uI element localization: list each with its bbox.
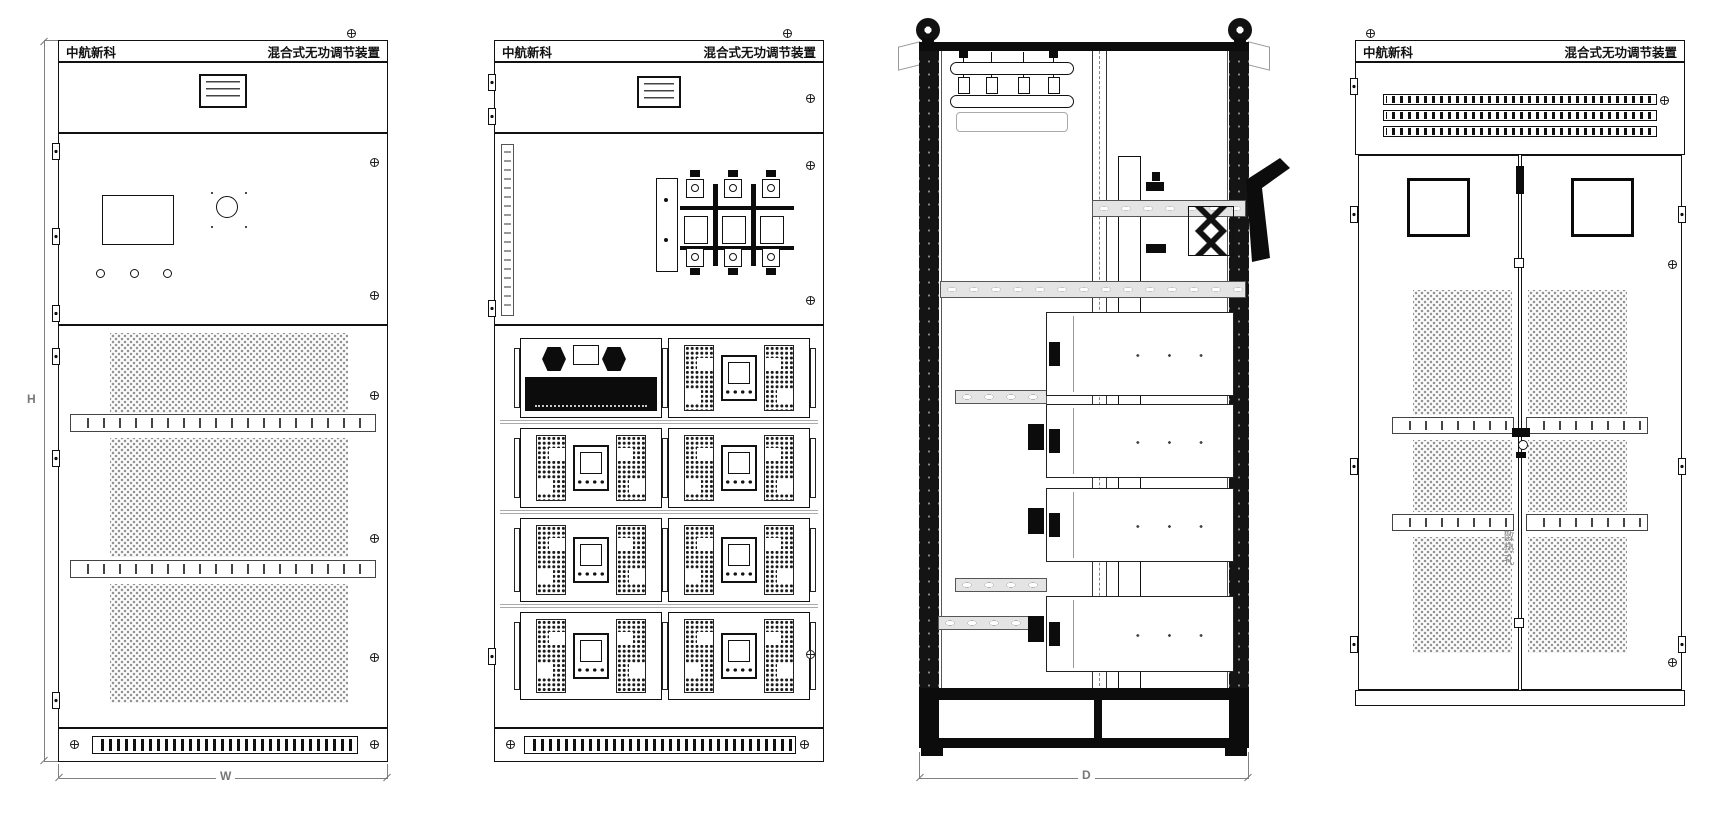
- power-module: [520, 518, 662, 602]
- screw-fastener: [70, 740, 79, 749]
- brand-label: 中航新科: [66, 42, 116, 61]
- door-lock-knob: [216, 196, 238, 218]
- ventilation-mesh: [1413, 290, 1512, 415]
- module-connector: [1049, 429, 1060, 453]
- breaker-terminal-cap: [728, 268, 738, 275]
- busbar-clamp: [1048, 77, 1060, 94]
- module-display-screen: [580, 544, 602, 566]
- door-hinge: [1678, 458, 1686, 475]
- door-hinge: [1678, 636, 1686, 653]
- dimension-label-depth: D: [1078, 768, 1095, 782]
- module-vent-strip: [684, 345, 714, 411]
- breaker-terminal-bolt: [767, 184, 775, 192]
- dimension-label-height: H: [27, 392, 36, 406]
- mounting-ear: [514, 348, 520, 408]
- dimension-extension: [44, 761, 58, 762]
- module-display-screen: [728, 452, 750, 474]
- cabinet4-header: 中航新科 混合式无功调节装置: [1355, 40, 1685, 62]
- product-title: 混合式无功调节装置: [267, 42, 380, 61]
- dimension-label-width: W: [216, 769, 235, 783]
- switch-bolt: [1146, 244, 1166, 253]
- screw-fastener: [1660, 96, 1669, 105]
- cad-drawing-canvas: 中航新科 混合式无功调节装置 H W 中航新科 混合式无: [0, 0, 1712, 813]
- module-vent-strip: [684, 619, 714, 693]
- door-hinge: [52, 450, 60, 467]
- busbar: [950, 95, 1074, 108]
- module-fastener-dots: [1122, 354, 1217, 357]
- base-center-support: [1094, 700, 1102, 738]
- terminal-block: [1028, 616, 1044, 642]
- module-vent-strip: [616, 619, 646, 693]
- door-hinge: [52, 305, 60, 322]
- module-display-leds: [576, 572, 606, 576]
- module-panel-line: [1073, 492, 1074, 558]
- top-vent-slats: [1383, 126, 1657, 137]
- breaker-terminal-bolt: [729, 253, 737, 261]
- door-latch: [1514, 258, 1524, 268]
- slotted-mounting-rail: [938, 616, 1040, 630]
- power-module: [668, 612, 810, 700]
- cabinet3-top-rail: [919, 42, 1249, 51]
- mounting-ear: [514, 622, 520, 690]
- terminal-block: [1028, 424, 1044, 450]
- breaker-terminal-bolt: [767, 253, 775, 261]
- mounting-ear: [662, 622, 668, 690]
- power-module: [668, 338, 810, 418]
- indicator-light: [96, 269, 105, 278]
- busbar-clamp: [958, 77, 970, 94]
- breaker-terminal-cap: [690, 268, 700, 275]
- cabinet2-nameplate: [637, 76, 681, 108]
- dimension-line-height: [44, 40, 45, 762]
- module-panel-line: [1073, 408, 1074, 474]
- cabinet4-top-panel: [1355, 62, 1685, 155]
- busbar-bolt-head: [959, 51, 968, 58]
- rectifier-module: [520, 338, 662, 418]
- switch-bolt: [1146, 182, 1164, 191]
- ventilation-mesh: [110, 438, 348, 557]
- louver-strip: [1526, 514, 1648, 531]
- mounting-rail-vertical: [501, 144, 514, 316]
- cabinet1-nameplate: [199, 74, 247, 108]
- module-display-leds: [724, 390, 754, 394]
- module-connector: [1049, 622, 1060, 646]
- door-hinge: [488, 74, 496, 91]
- mounting-ear: [662, 528, 668, 592]
- observation-window: [1571, 178, 1634, 237]
- door-hinge: [1350, 206, 1358, 223]
- module-vent-strip: [764, 525, 794, 595]
- base-vent-slats: [92, 736, 358, 754]
- cooling-fan-icon: [601, 346, 627, 372]
- screw-fastener: [506, 740, 515, 749]
- door-hinge: [488, 648, 496, 665]
- louver-strip: [1526, 417, 1648, 434]
- switch-linkage-brace: [1188, 206, 1234, 256]
- power-module: [520, 428, 662, 508]
- cooling-fan-icon: [541, 346, 567, 372]
- screw-fastener: [806, 296, 815, 305]
- dimension-extension: [919, 752, 920, 778]
- module-fastener-dots: [1122, 525, 1217, 528]
- screw-fastener: [370, 740, 379, 749]
- module-side-view: [1046, 404, 1234, 478]
- door-hinge: [1350, 636, 1358, 653]
- screw-fastener: [1668, 260, 1677, 269]
- breaker-terminal-cap: [690, 170, 700, 177]
- brand-label: 中航新科: [502, 42, 552, 61]
- screw-fastener: [1366, 29, 1375, 38]
- module-display-leds: [576, 668, 606, 672]
- screw-fastener: [370, 653, 379, 662]
- ventilation-mesh: [1528, 440, 1627, 512]
- product-title: 混合式无功调节装置: [703, 42, 816, 61]
- power-module: [520, 612, 662, 700]
- ventilation-mesh: [110, 584, 348, 703]
- rack-shelf: [500, 420, 818, 424]
- module-vent-strip: [764, 345, 794, 411]
- module-display: [721, 537, 757, 583]
- door-hinge: [1350, 78, 1358, 95]
- door-hinge: [488, 108, 496, 125]
- product-title: 混合式无功调节装置: [1564, 42, 1677, 61]
- louver-strip: [1392, 417, 1514, 434]
- breaker-terminal-bolt: [691, 253, 699, 261]
- module-vent-strip: [536, 435, 566, 501]
- module-display-screen: [580, 640, 602, 662]
- top-vent-slats: [1383, 110, 1657, 121]
- screw-fastener: [370, 158, 379, 167]
- knob-corner-dot: [211, 226, 213, 228]
- busbar-clamp: [986, 77, 998, 94]
- base-bottom-rail: [919, 738, 1249, 748]
- rack-shelf: [500, 604, 818, 608]
- terminal-block: [1028, 508, 1044, 534]
- module-display-screen: [728, 362, 750, 384]
- module-display-screen: [728, 544, 750, 566]
- slotted-mounting-rail: [940, 281, 1246, 298]
- cabinet3-bottom-rail: [919, 688, 1249, 700]
- module-vent-strip: [616, 525, 646, 595]
- cabinet1-header: 中航新科 混合式无功调节装置: [58, 40, 388, 62]
- ventilation-mesh: [1528, 290, 1627, 415]
- breaker-pole-body: [722, 216, 746, 244]
- louver-strip: [70, 414, 376, 432]
- module-display: [721, 633, 757, 679]
- observation-window: [1407, 178, 1470, 237]
- breaker-terminal-cap: [766, 170, 776, 177]
- door-hinge: [52, 348, 60, 365]
- door-hinge: [488, 300, 496, 317]
- breaker-pole-body: [684, 216, 708, 244]
- breaker-side-plate: [656, 178, 678, 272]
- busbar-bolt-head: [1049, 51, 1058, 58]
- module-display-leds: [724, 480, 754, 484]
- busbar: [950, 62, 1074, 75]
- module-panel-line: [1073, 600, 1074, 668]
- breaker-phase-barrier: [751, 184, 756, 266]
- module-fastener-dots: [1122, 634, 1217, 637]
- module-connector: [1049, 342, 1060, 366]
- leveling-foot: [1225, 748, 1247, 756]
- cabinet2-header: 中航新科 混合式无功调节装置: [494, 40, 824, 62]
- ventilation-mesh: [1413, 440, 1512, 512]
- module-display-leds: [576, 480, 606, 484]
- module-vent-strip: [536, 525, 566, 595]
- base-vent-slats: [524, 736, 796, 754]
- module-vent-strip: [764, 435, 794, 501]
- door-handle: [1516, 166, 1524, 194]
- cabinet4-base-panel: [1355, 690, 1685, 706]
- door-lock-cylinder: [1518, 440, 1528, 450]
- frame-inner-line: [941, 51, 942, 691]
- breaker-plate-dot: [664, 198, 668, 202]
- mounting-ear: [662, 438, 668, 498]
- knob-corner-dot: [245, 226, 247, 228]
- module-fastener-dots: [1122, 441, 1217, 444]
- base-corner-post: [919, 700, 939, 740]
- screw-fastener: [370, 291, 379, 300]
- door-lock: [1516, 452, 1526, 458]
- ventilation-mesh: [1413, 537, 1512, 653]
- module-control-window: [573, 345, 599, 365]
- mounting-ear: [810, 438, 816, 498]
- module-vent-strip: [536, 619, 566, 693]
- screw-fastener: [783, 29, 792, 38]
- module-vent-strip: [764, 619, 794, 693]
- module-display: [573, 633, 609, 679]
- module-display-screen: [728, 640, 750, 662]
- slotted-mounting-rail: [955, 390, 1047, 404]
- screw-fastener: [1668, 658, 1677, 667]
- mounting-ear: [810, 528, 816, 592]
- door-hinge: [52, 228, 60, 245]
- switch-bolt: [1152, 172, 1160, 181]
- breaker-phase-barrier: [713, 184, 718, 266]
- breaker-terminal-cap: [766, 268, 776, 275]
- door-hinge: [52, 143, 60, 160]
- module-side-view: [1046, 312, 1234, 396]
- screw-fastener: [370, 534, 379, 543]
- top-vent-slats: [1383, 94, 1657, 105]
- screw-fastener: [800, 740, 809, 749]
- module-display: [721, 445, 757, 491]
- mounting-ear: [514, 438, 520, 498]
- module-side-view: [1046, 596, 1234, 672]
- lifting-bracket-outline: [898, 41, 920, 70]
- mounting-ear: [810, 348, 816, 408]
- indicator-light: [130, 269, 139, 278]
- screw-fastener: [806, 161, 815, 170]
- module-connector: [1049, 513, 1060, 537]
- leveling-foot: [921, 748, 943, 756]
- louver-strip: [1392, 514, 1514, 531]
- slotted-mounting-rail: [955, 578, 1047, 592]
- door-hinge: [1678, 206, 1686, 223]
- brand-label: 中航新科: [1363, 42, 1413, 61]
- module-display: [573, 445, 609, 491]
- louver-strip: [70, 560, 376, 578]
- breaker-terminal-bolt: [729, 184, 737, 192]
- knob-corner-dot: [245, 192, 247, 194]
- power-module: [668, 518, 810, 602]
- breaker-terminal-bolt: [691, 184, 699, 192]
- module-display-leds: [724, 668, 754, 672]
- cabinet3-frame-post: [919, 51, 939, 691]
- switch-operating-handle: [1244, 156, 1296, 268]
- ventilation-mesh: [110, 333, 348, 413]
- screw-fastener: [806, 94, 815, 103]
- indicator-light: [163, 269, 172, 278]
- grille-dot-line: [535, 405, 647, 407]
- breaker-terminal-cap: [728, 170, 738, 177]
- dimension-extension: [44, 40, 58, 41]
- lifting-bracket-outline: [1248, 41, 1270, 70]
- nameplate-text-lines: [206, 81, 240, 101]
- door-hinge: [52, 692, 60, 709]
- screw-fastener: [370, 391, 379, 400]
- vent-annotation-label: 散热孔: [1500, 530, 1516, 582]
- nameplate-text-lines: [644, 83, 674, 101]
- breaker-busbar: [680, 206, 794, 210]
- knob-corner-dot: [211, 192, 213, 194]
- ventilation-mesh: [1528, 537, 1627, 653]
- module-display-leds: [724, 572, 754, 576]
- module-display: [721, 355, 757, 401]
- screw-fastener: [806, 650, 815, 659]
- module-panel-line: [1073, 316, 1074, 392]
- module-side-view: [1046, 488, 1234, 562]
- module-vent-strip: [684, 525, 714, 595]
- busbar-clamp: [1018, 77, 1030, 94]
- door-hinge: [1350, 458, 1358, 475]
- mounting-ear: [514, 528, 520, 592]
- busbar-shroud-outline: [956, 112, 1068, 132]
- hmi-screen: [102, 195, 174, 245]
- door-latch: [1514, 618, 1524, 628]
- base-corner-post: [1229, 700, 1249, 740]
- module-vent-strip: [684, 435, 714, 501]
- door-lock: [1512, 428, 1530, 437]
- module-display: [573, 537, 609, 583]
- module-display-screen: [580, 452, 602, 474]
- rack-shelf: [500, 510, 818, 514]
- screw-fastener: [347, 29, 356, 38]
- breaker-plate-dot: [664, 238, 668, 242]
- breaker-pole-body: [760, 216, 784, 244]
- mounting-ear: [662, 348, 668, 408]
- module-vent-strip: [616, 435, 646, 501]
- power-module: [668, 428, 810, 508]
